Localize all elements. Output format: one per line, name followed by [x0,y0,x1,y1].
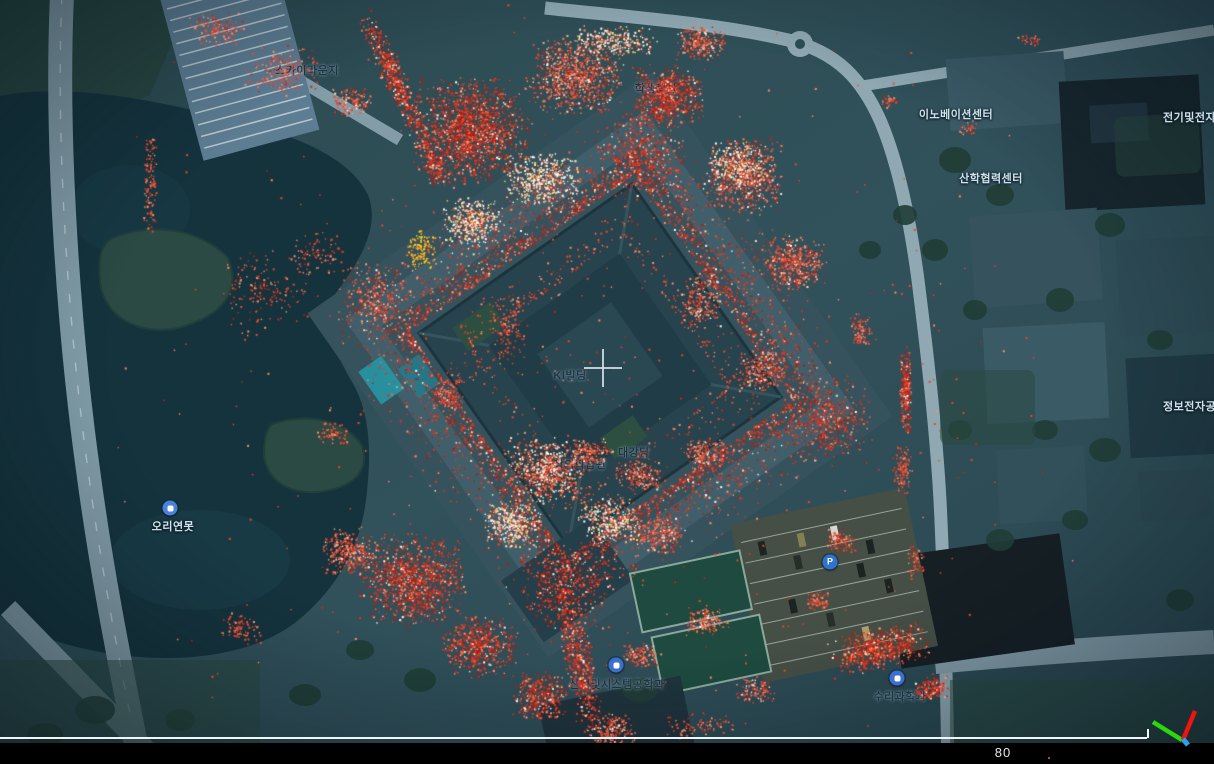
scale-bar-end-tick [1147,729,1149,738]
map-viewport[interactable]: 스카이라운지 학생회관 이노베이션센터 산학협력센터 전기및전자공학부 정보전자… [0,0,1214,764]
scale-value-label: 80 [995,745,1011,760]
lidar-point-cloud [0,0,1214,764]
bar-dot [1048,757,1050,759]
bottom-status-bar[interactable] [0,743,1214,764]
scale-bar-line [0,737,1147,739]
